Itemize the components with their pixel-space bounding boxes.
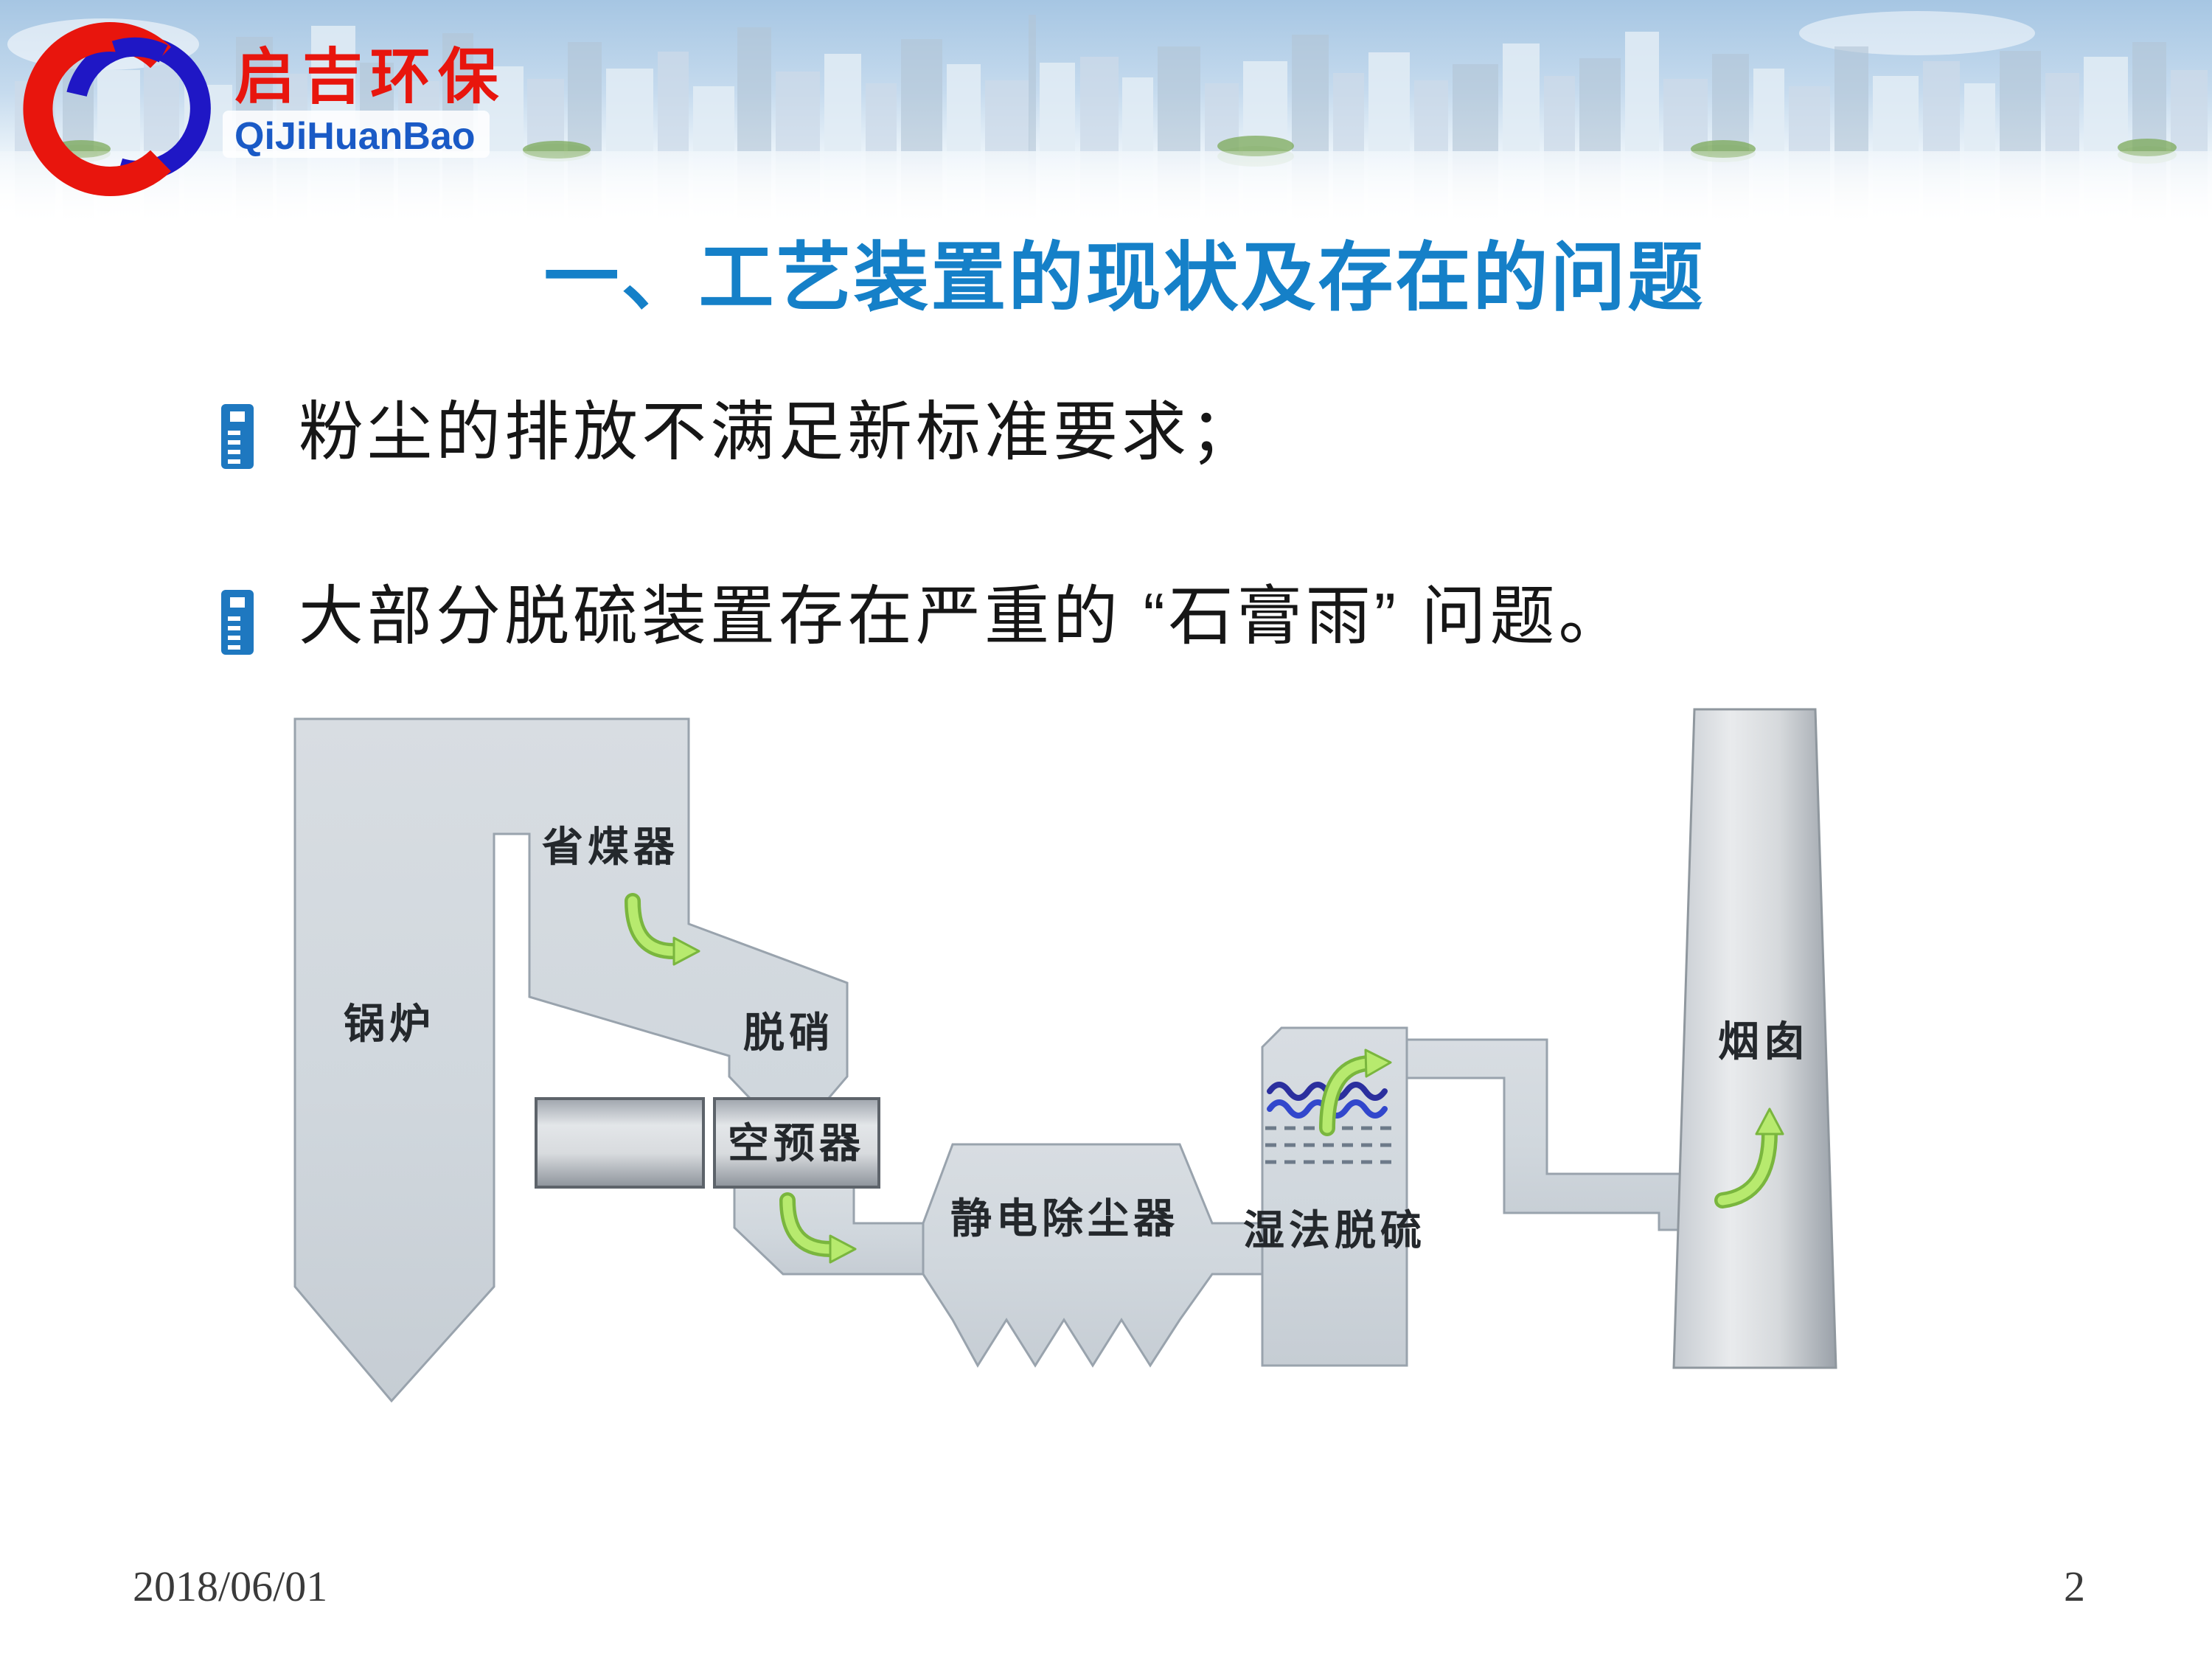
logo-swirl-icon xyxy=(38,23,223,186)
ap-to-esp-duct-shape xyxy=(734,1183,923,1274)
fgd-to-chimney-duct-shape xyxy=(1407,1040,1690,1230)
air-duct-box xyxy=(536,1099,703,1187)
label-wet-fgd: 湿法脱硫 xyxy=(1243,1207,1426,1253)
bullet-1-text: 粉尘的排放不满足新标准要求； xyxy=(299,380,1259,473)
label-esp: 静电除尘器 xyxy=(950,1195,1179,1242)
label-economizer: 省煤器 xyxy=(542,824,679,870)
esp-shape xyxy=(923,1144,1265,1366)
flue-gas-process-diagram: 锅炉 省煤器 脱硝 空预器 静电除尘器 湿法脱硫 烟囱 xyxy=(280,693,1873,1416)
bullet-marker-icon xyxy=(221,404,254,469)
bullet-marker-icon xyxy=(221,590,254,655)
logo-text-cn: 启吉环保 xyxy=(234,44,506,111)
presentation-slide: 启吉环保 QiJiHuanBao 一、工艺装置的现状及存在的问题 粉尘的排放不满… xyxy=(0,0,2212,1659)
label-air-preheater: 空预器 xyxy=(728,1120,865,1166)
logo-text-en: QiJiHuanBao xyxy=(234,115,476,158)
page-title: 一、工艺装置的现状及存在的问题 xyxy=(295,218,1954,326)
slide-page-number: 2 xyxy=(2064,1562,2085,1611)
boiler-economizer-scr-shape xyxy=(295,719,847,1401)
label-boiler: 锅炉 xyxy=(344,1001,435,1047)
header-banner: 启吉环保 QiJiHuanBao xyxy=(0,0,2212,221)
company-logo: 启吉环保 QiJiHuanBao xyxy=(0,0,531,221)
slide-date: 2018/06/01 xyxy=(133,1562,327,1611)
label-denitration: 脱硝 xyxy=(743,1009,835,1056)
label-chimney: 烟囱 xyxy=(1718,1018,1809,1065)
bullet-2-text: 大部分脱硫装置存在严重的 “石膏雨” 问题。 xyxy=(299,564,1627,658)
